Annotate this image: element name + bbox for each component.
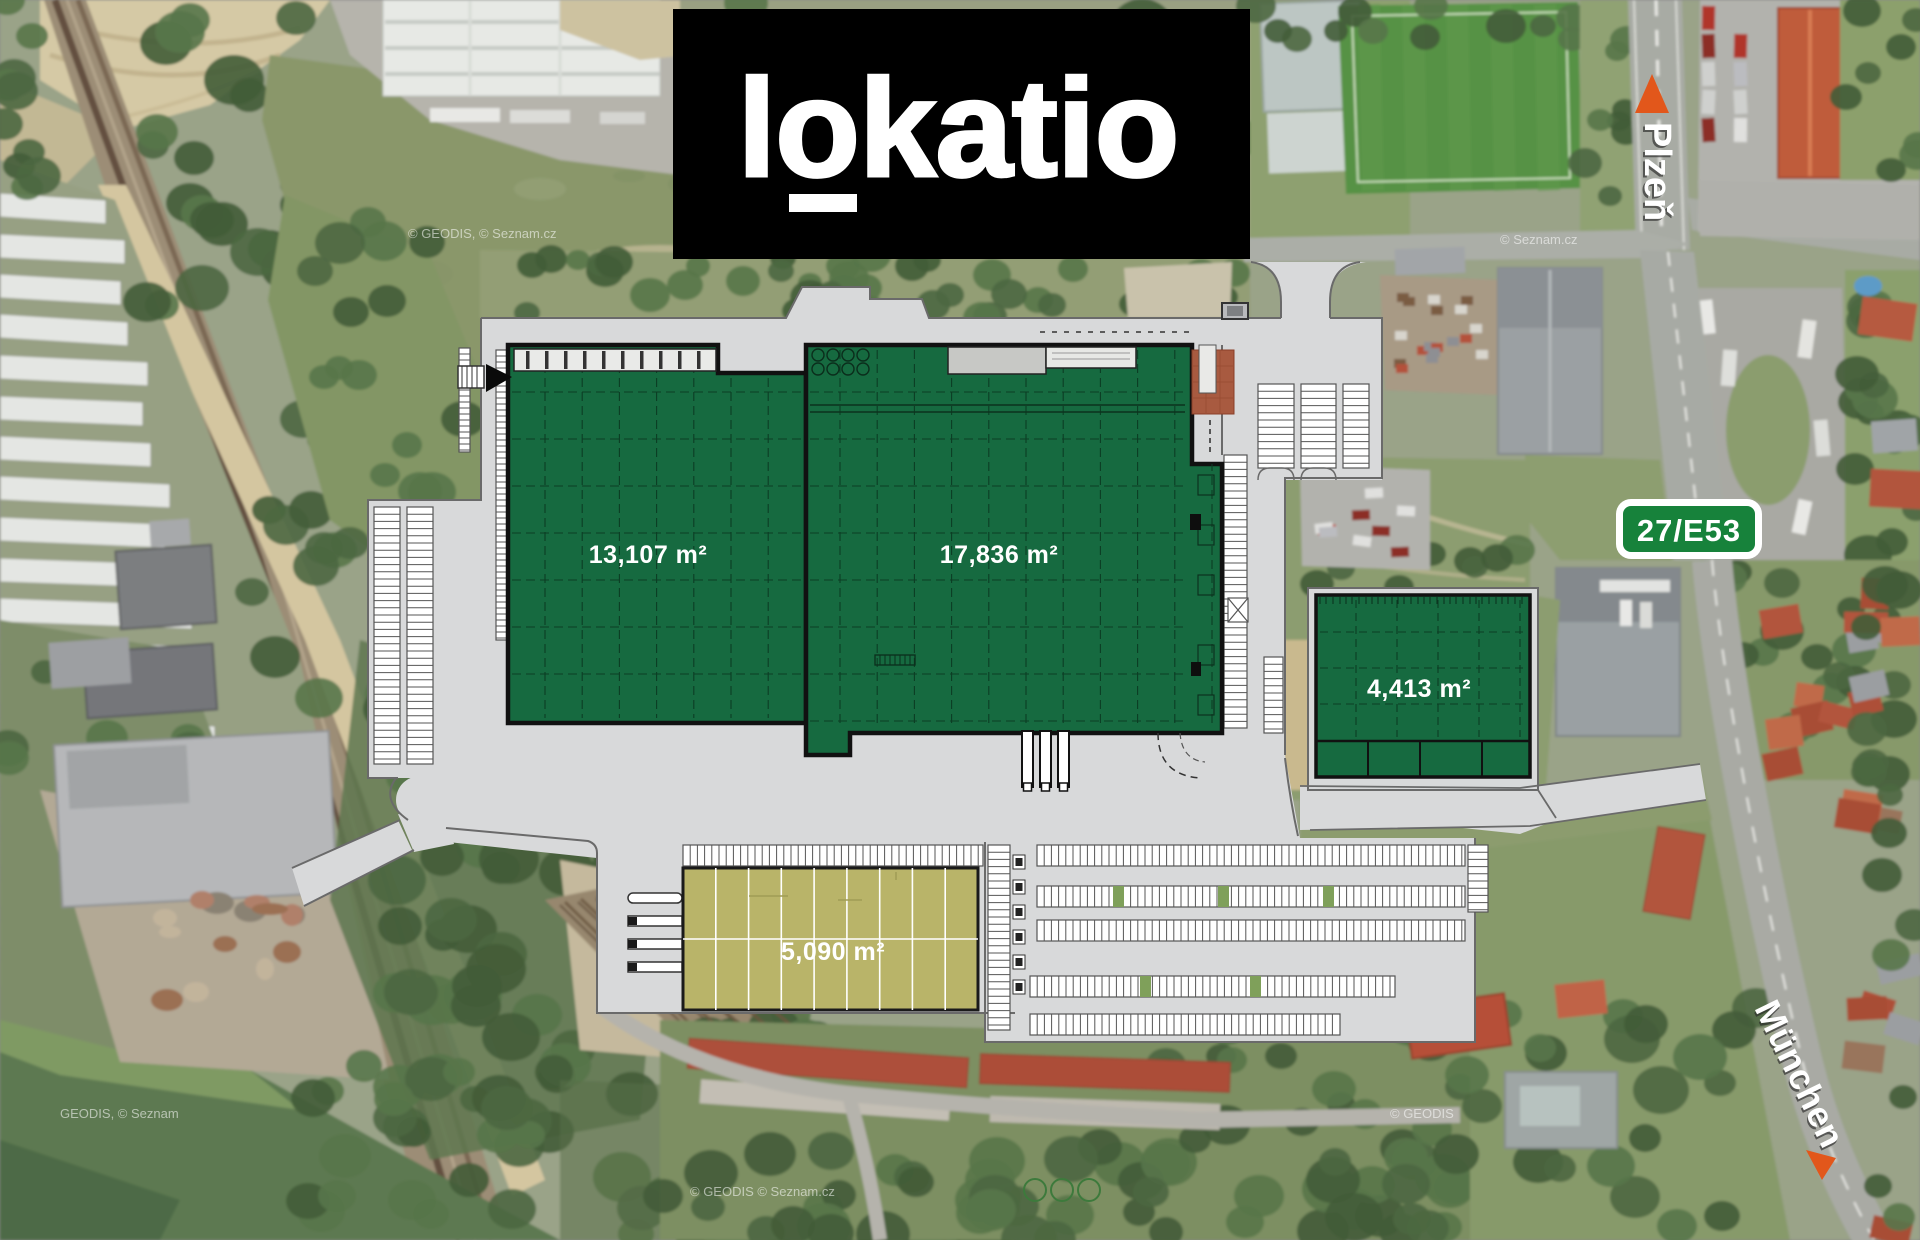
svg-text:© GEODIS © Seznam.cz: © GEODIS © Seznam.cz bbox=[690, 1184, 835, 1199]
svg-text:27/E53: 27/E53 bbox=[1637, 513, 1741, 548]
svg-text:lokatio: lokatio bbox=[738, 51, 1179, 206]
svg-text:13,107 m²: 13,107 m² bbox=[589, 541, 707, 569]
svg-text:4,413 m²: 4,413 m² bbox=[1367, 675, 1471, 703]
svg-text:5,090 m²: 5,090 m² bbox=[781, 938, 885, 966]
svg-text:Plzeň: Plzeň bbox=[1636, 122, 1678, 221]
svg-text:© Seznam.cz: © Seznam.cz bbox=[1500, 232, 1578, 247]
svg-text:17,836 m²: 17,836 m² bbox=[940, 541, 1058, 569]
svg-text:GEODIS, © Seznam: GEODIS, © Seznam bbox=[60, 1106, 179, 1121]
svg-text:© GEODIS, © Seznam.cz: © GEODIS, © Seznam.cz bbox=[408, 226, 556, 241]
svg-text:© GEODIS: © GEODIS bbox=[1390, 1106, 1454, 1121]
